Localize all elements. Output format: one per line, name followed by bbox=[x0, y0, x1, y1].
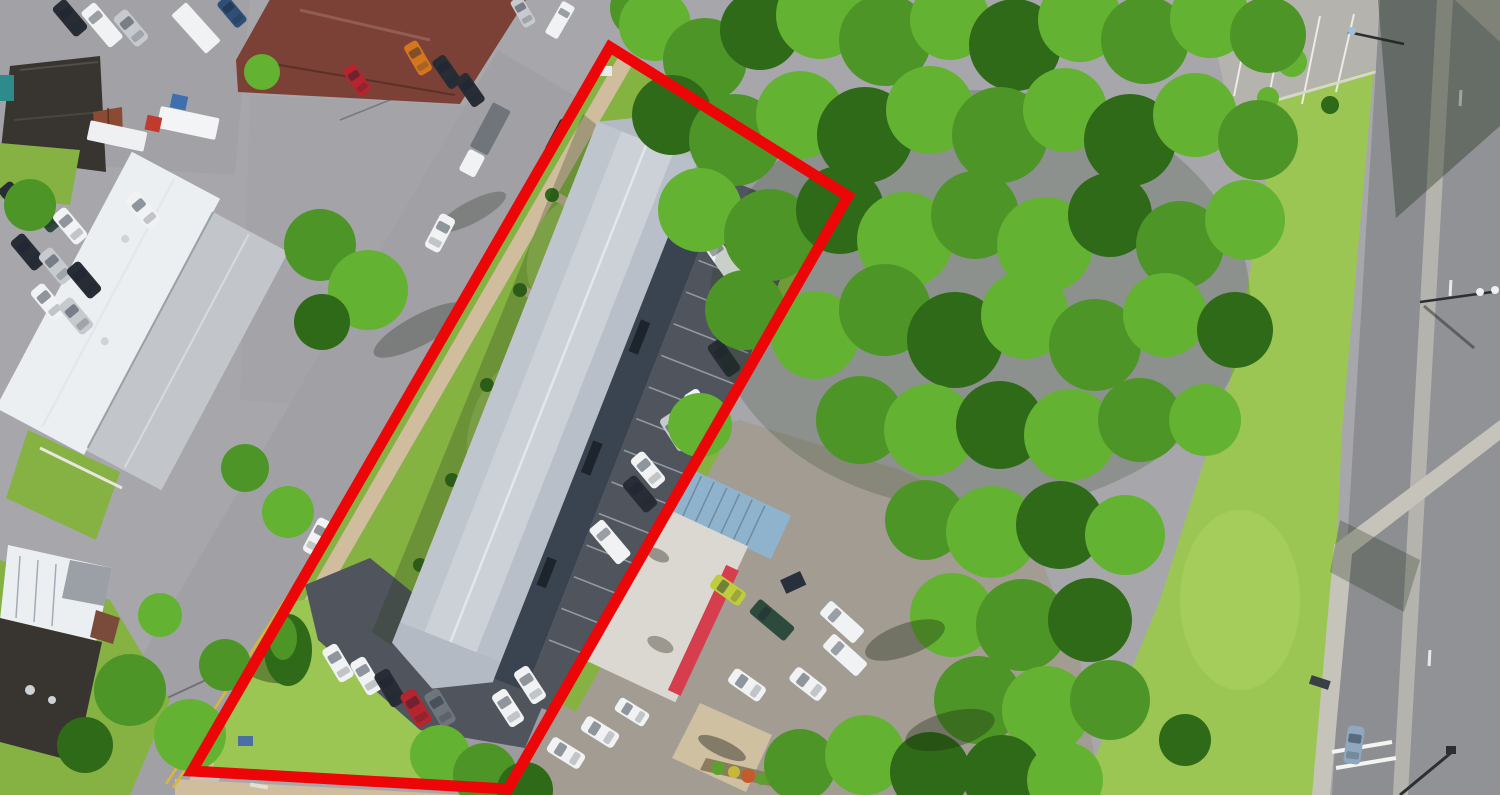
aerial-photo: Aerial drone photograph of a commercial … bbox=[0, 0, 1500, 795]
lawn-sign bbox=[238, 736, 253, 746]
